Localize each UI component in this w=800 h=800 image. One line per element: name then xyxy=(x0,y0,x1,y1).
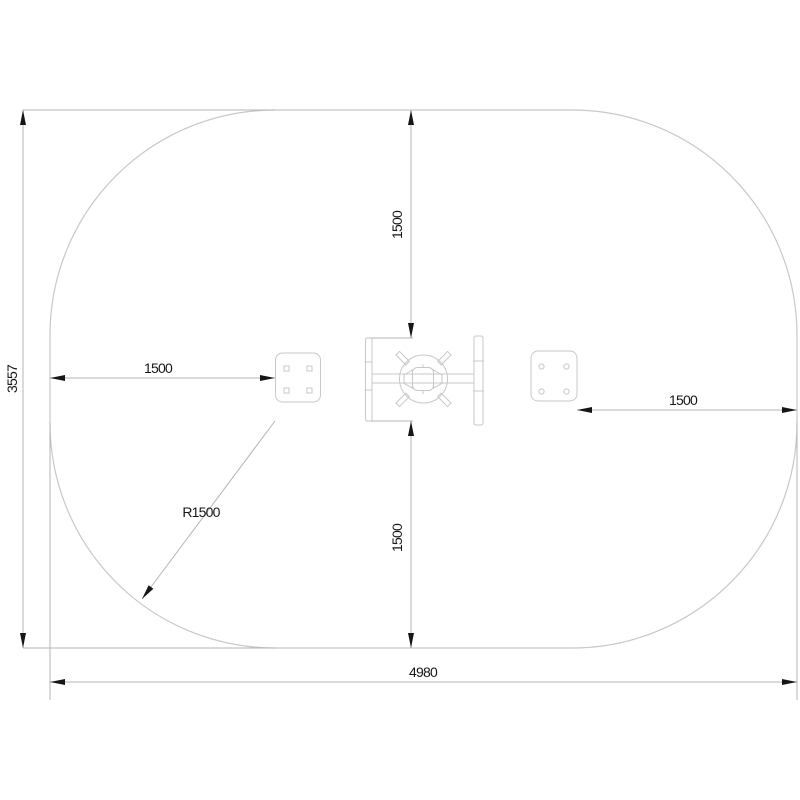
spring-arm-icon xyxy=(396,393,409,406)
bolt-hole xyxy=(564,364,569,369)
safety-area-outline xyxy=(50,110,797,648)
dimension-right-clearance-label: 1500 xyxy=(669,392,698,408)
cone-connector-left xyxy=(404,370,413,388)
crossbeam xyxy=(372,374,474,383)
spring-arm-icon xyxy=(438,393,451,406)
arrow-down-icon xyxy=(408,323,414,338)
arrow-diagonal-icon xyxy=(142,585,153,599)
bolt-hole xyxy=(564,389,569,394)
center-bearing-block xyxy=(413,368,434,391)
arrow-up-icon xyxy=(408,421,414,436)
arrow-down-icon xyxy=(20,633,26,648)
cone-connector-right xyxy=(434,370,443,388)
arrow-left-icon xyxy=(577,407,592,413)
right-handlebar xyxy=(474,336,483,425)
seat-pad-outline xyxy=(531,351,577,401)
dimension-overall-height-label: 3557 xyxy=(4,364,20,393)
right-seat-pad xyxy=(531,351,577,401)
drawing-canvas: 3557 4980 1500 1500 1500 1500 R1500 xyxy=(0,0,800,800)
dimension-overall-width-label: 4980 xyxy=(409,664,438,680)
left-seat-pad xyxy=(276,353,321,402)
arrow-right-icon xyxy=(782,407,797,413)
spring-housing-circle xyxy=(400,355,448,403)
seesaw-equipment xyxy=(365,327,485,430)
arrow-right-icon xyxy=(782,679,797,685)
spring-arm-icon xyxy=(396,351,409,364)
arrow-up-icon xyxy=(408,110,414,125)
bolt-hole xyxy=(307,366,312,371)
dimension-bottom-clearance-label: 1500 xyxy=(389,523,405,552)
bolt-hole xyxy=(284,366,289,371)
arrow-up-icon xyxy=(20,110,26,125)
dimension-top-clearance-label: 1500 xyxy=(389,210,405,239)
arrow-left-icon xyxy=(50,375,65,381)
left-handlebar xyxy=(366,338,373,421)
bolt-hole xyxy=(307,388,312,393)
bolt-hole xyxy=(539,364,544,369)
seat-pad-outline xyxy=(276,353,321,402)
arrow-down-icon xyxy=(408,633,414,648)
bolt-hole xyxy=(284,388,289,393)
spring-arms xyxy=(372,327,475,430)
arrow-right-icon xyxy=(260,375,275,381)
spring-arm-icon xyxy=(438,351,451,364)
arrow-left-icon xyxy=(50,679,65,685)
bolt-hole xyxy=(539,389,544,394)
dimension-radius-label: R1500 xyxy=(182,504,220,520)
technical-drawing-page: 3557 4980 1500 1500 1500 1500 R1500 xyxy=(0,0,800,800)
dimension-left-clearance-label: 1500 xyxy=(144,360,173,376)
